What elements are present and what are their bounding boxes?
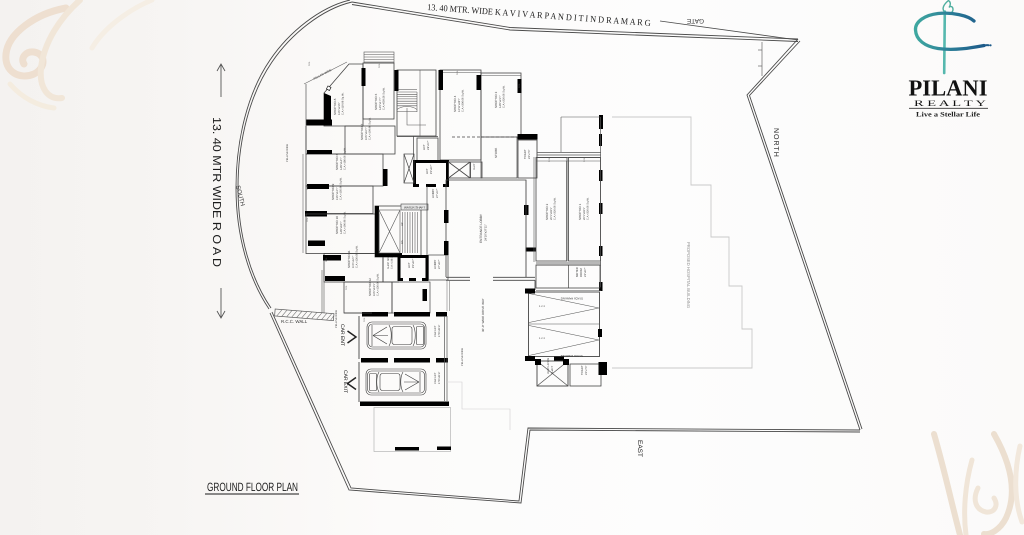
svg-text:LOBBY: LOBBY (431, 189, 435, 198)
svg-text:PELLINE WIDE: PELLINE WIDE (335, 310, 338, 328)
svg-text:TOILET: TOILET (580, 365, 584, 375)
svg-text:C.A.=220.06 Sq.Mt.: C.A.=220.06 Sq.Mt. (503, 85, 506, 108)
svg-text:LIFT: LIFT (425, 168, 429, 174)
svg-text:ENTRANCE LOBBY: ENTRANCE LOBBY (479, 213, 483, 243)
svg-text:TOILET: TOILET (523, 149, 527, 159)
svg-text:CAR ENT: CAR ENT (339, 324, 345, 346)
svg-text:PELLINE WIDE: PELLINE WIDE (286, 144, 289, 162)
svg-text:LOBBY: LOBBY (433, 260, 437, 269)
svg-text:1 2 3: 1 2 3 (539, 337, 545, 340)
svg-text:CAR LIFT: CAR LIFT (434, 325, 437, 337)
svg-text:17'6"x21'4": 17'6"x21'4" (438, 325, 441, 337)
svg-text:C.A.=119.96 Sq.Mt.: C.A.=119.96 Sq.Mt. (342, 92, 345, 115)
svg-text:ROOM: ROOM (579, 268, 583, 277)
svg-text:R.S.: R.S. (363, 317, 366, 322)
svg-text:CAR LIFT: CAR LIFT (434, 372, 437, 384)
svg-text:CAR EXIT: CAR EXIT (342, 370, 348, 393)
svg-text:R.S.: R.S. (583, 157, 586, 162)
svg-text:R.S.: R.S. (308, 61, 311, 66)
svg-text:SHOP NO 6: SHOP NO 6 (374, 93, 378, 110)
svg-text:EAST: EAST (636, 440, 643, 457)
svg-text:C.A.=150.96 Sq.Mt.: C.A.=150.96 Sq.Mt. (340, 177, 343, 200)
svg-text:C.A.=130.06 Sq.Mt.: C.A.=130.06 Sq.Mt. (377, 273, 380, 296)
svg-text:VENTILATION: VENTILATION (547, 358, 550, 374)
svg-text:R.S.: R.S. (345, 285, 348, 290)
svg-text:DN: DN (401, 240, 404, 244)
svg-text:R.S.: R.S. (518, 83, 521, 88)
svg-text:SHOP NO 3: SHOP NO 3 (494, 91, 498, 108)
svg-text:4'0"x7'0": 4'0"x7'0" (585, 365, 588, 375)
svg-text:C.A.=130.06 Sq.Mt.: C.A.=130.06 Sq.Mt. (356, 245, 359, 268)
svg-text:DUCT: DUCT (473, 163, 476, 170)
svg-text:SHOP NO-5: SHOP NO-5 (333, 98, 337, 115)
svg-text:C.A.=659.56 Sq.Mt.: C.A.=659.56 Sq.Mt. (383, 87, 386, 110)
svg-text:R.S.: R.S. (456, 70, 459, 75)
svg-text:PILANI: PILANI (909, 76, 988, 101)
svg-text:4'7"x6'7": 4'7"x6'7" (438, 259, 441, 269)
svg-text:PELLINE WIDE: PELLINE WIDE (461, 348, 464, 366)
svg-text:SHOP NO 2: SHOP NO 2 (545, 203, 549, 220)
svg-text:C.A.=109.96 Sq.Mt.: C.A.=109.96 Sq.Mt. (369, 117, 372, 140)
svg-text:Live a Stellar Life: Live a Stellar Life (916, 112, 980, 119)
svg-text:R.C.C. WALL: R.C.C. WALL (281, 319, 308, 324)
svg-text:C.A.=190.96 Sq.Mt.: C.A.=190.96 Sq.Mt. (344, 211, 347, 234)
svg-text:4'0"x7'0": 4'0"x7'0" (528, 149, 531, 159)
svg-text:30'-0" WIDE DRIVE WAY: 30'-0" WIDE DRIVE WAY (481, 298, 485, 332)
svg-text:SHOP NO 8: SHOP NO 8 (335, 153, 339, 170)
svg-text:PROPOSED HOSPITAL BUILDING: PROPOSED HOSPITAL BUILDING (686, 242, 691, 308)
svg-text:R.S.: R.S. (306, 185, 309, 190)
svg-text:13. 40 MTR WIDE R O A D: 13. 40 MTR WIDE R O A D (210, 117, 222, 267)
svg-text:4'2"x6'7": 4'2"x6'7" (584, 267, 587, 277)
svg-text:SHAFT: SHAFT (551, 365, 554, 374)
svg-text:R E A L T Y: R E A L T Y (914, 98, 986, 108)
svg-text:SHOP NO 1: SHOP NO 1 (578, 203, 582, 220)
svg-text:SHOP NO 11: SHOP NO 11 (347, 250, 351, 268)
svg-text:8'0"x6'7": 8'0"x6'7" (430, 164, 433, 174)
svg-text:8'0"x6'7": 8'0"x6'7" (412, 258, 415, 268)
svg-text:SHOP NO 12: SHOP NO 12 (368, 278, 372, 296)
svg-text:STORE: STORE (494, 148, 498, 158)
svg-text:R.S.: R.S. (548, 157, 551, 162)
svg-text:LIFT: LIFT (422, 144, 426, 150)
svg-text:GATE: GATE (686, 17, 704, 24)
svg-text:UP: UP (401, 222, 404, 226)
svg-text:SHOP NO 4: SHOP NO 4 (453, 95, 457, 112)
svg-text:STACK PARKING: STACK PARKING (561, 354, 583, 358)
svg-text:C.A.=320.06 Sq.Mt.: C.A.=320.06 Sq.Mt. (587, 197, 590, 220)
svg-text:GROUND FLOOR PLAN: GROUND FLOOR PLAN (207, 480, 298, 494)
svg-text:4'7"x5'7": 4'7"x5'7" (436, 188, 439, 198)
svg-text:17'6"x21'4": 17'6"x21'4" (438, 372, 441, 384)
svg-text:SHOP NO 7: SHOP NO 7 (360, 123, 364, 140)
svg-text:R.S.: R.S. (306, 217, 309, 222)
svg-text:R.S.: R.S. (325, 257, 328, 262)
svg-text:4'6"x5'7": 4'6"x5'7" (427, 140, 430, 150)
svg-text:LIFT: LIFT (407, 262, 411, 268)
svg-text:1 2 3: 1 2 3 (539, 305, 545, 308)
svg-text:NORTH: NORTH (772, 128, 779, 158)
svg-text:SHOP NO 9: SHOP NO 9 (331, 183, 335, 200)
svg-text:C.A.=180.06 Sq.Mt.: C.A.=180.06 Sq.Mt. (344, 147, 347, 170)
svg-text:24'10"x37'11": 24'10"x37'11" (484, 224, 488, 241)
svg-text:SHOP NO 10: SHOP NO 10 (335, 216, 339, 234)
svg-text:C.A.=306.06 Sq.Mt.: C.A.=306.06 Sq.Mt. (462, 89, 465, 112)
svg-text:C.A.=320.06 Sq.Mt.: C.A.=320.06 Sq.Mt. (554, 197, 557, 220)
svg-text:STACK PARKING: STACK PARKING (561, 297, 583, 301)
svg-text:R.S.: R.S. (378, 63, 381, 68)
svg-text:WATER SHAFT: WATER SHAFT (404, 206, 425, 210)
